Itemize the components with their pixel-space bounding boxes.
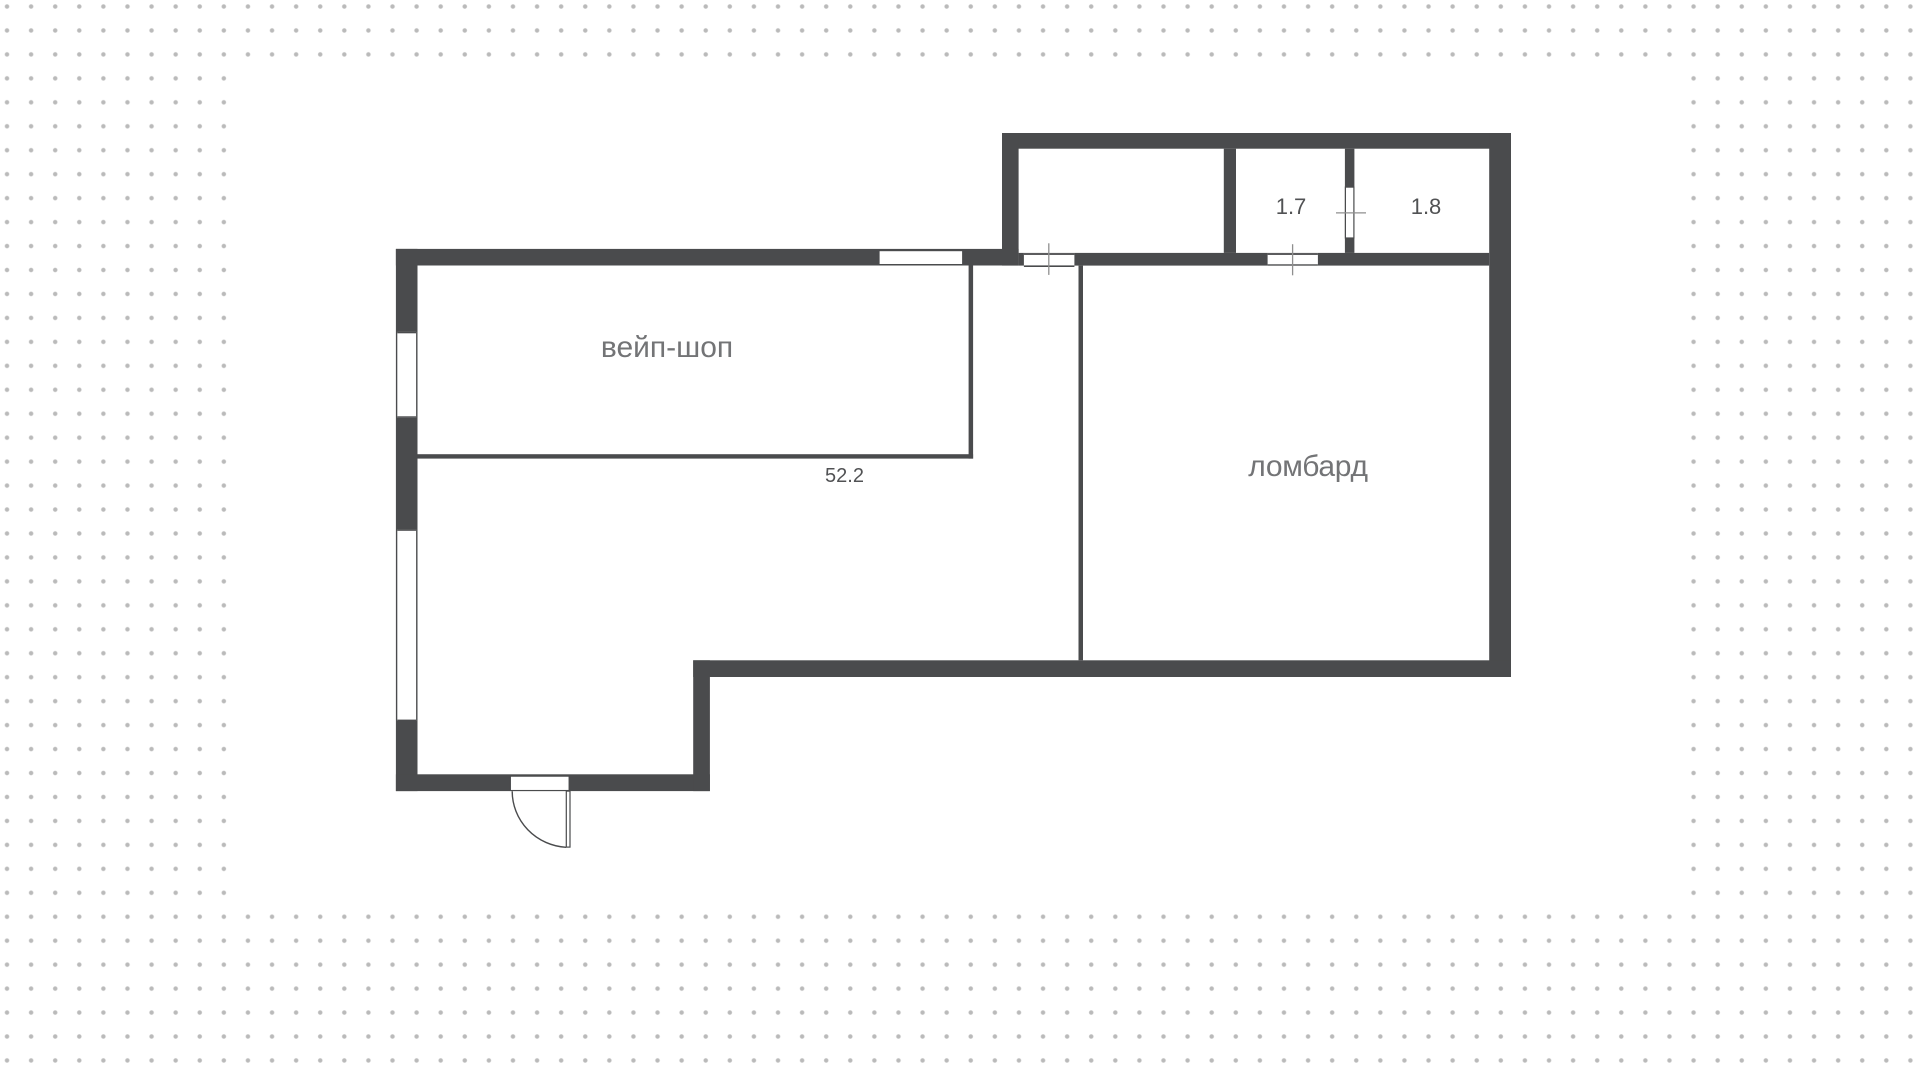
svg-text:ломбард: ломбард <box>1248 450 1367 483</box>
svg-text:1.8: 1.8 <box>1411 194 1442 219</box>
svg-text:1.7: 1.7 <box>1276 194 1307 219</box>
svg-text:вейп-шоп: вейп-шоп <box>601 331 733 364</box>
svg-text:52.2: 52.2 <box>825 465 864 487</box>
